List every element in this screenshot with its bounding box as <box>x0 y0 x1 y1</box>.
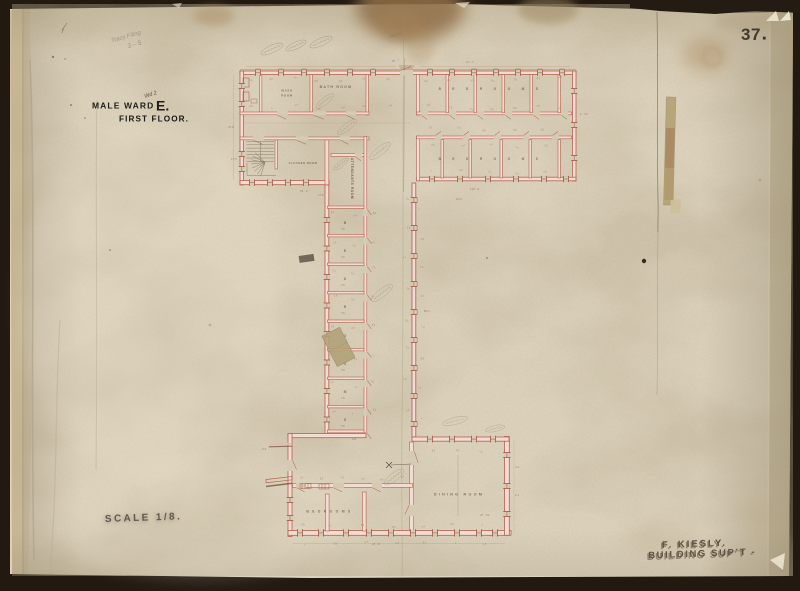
svg-text:9.8: 9.8 <box>352 437 357 441</box>
svg-text:ATTENDANTS ROOM: ATTENDANTS ROOM <box>350 158 354 199</box>
svg-text:M: M <box>344 390 347 394</box>
svg-text:80.1: 80.1 <box>424 309 430 313</box>
svg-text:7.6: 7.6 <box>341 283 345 287</box>
svg-text:E.: E. <box>156 98 169 114</box>
svg-text:2 . 10: 2 . 10 <box>580 112 588 116</box>
svg-text:ROOM: ROOM <box>281 94 293 98</box>
svg-text:2.1: 2.1 <box>515 493 520 497</box>
svg-text:3.1: 3.1 <box>515 465 520 469</box>
svg-text:17.4: 17.4 <box>231 157 237 161</box>
svg-text:BEDROOMS: BEDROOMS <box>439 157 550 161</box>
svg-text:FIRST FLOOR.: FIRST FLOOR. <box>119 115 189 124</box>
svg-text:146 . 9: 146 . 9 <box>470 187 480 191</box>
svg-text:17.8: 17.8 <box>318 193 324 197</box>
svg-text:DINING ROOM: DINING ROOM <box>434 493 484 497</box>
svg-text:27 . 10: 27 . 10 <box>480 513 490 517</box>
svg-text:MALE WARD: MALE WARD <box>92 101 154 111</box>
svg-text:37 . 8: 37 . 8 <box>372 542 380 546</box>
svg-text:27.8: 27.8 <box>228 125 234 129</box>
svg-text:BATH ROOM: BATH ROOM <box>320 85 353 89</box>
svg-text:7.6: 7.6 <box>341 368 345 372</box>
svg-text:7.6: 7.6 <box>341 396 345 400</box>
svg-text:7.6: 7.6 <box>341 255 345 259</box>
svg-text:54 . 2: 54 . 2 <box>300 189 308 193</box>
svg-text:WASH: WASH <box>281 89 292 93</box>
svg-text:6.2: 6.2 <box>262 447 267 451</box>
svg-text:7.6: 7.6 <box>341 227 345 231</box>
svg-text:10.6: 10.6 <box>456 197 462 201</box>
svg-text:CLOTHES ROOM: CLOTHES ROOM <box>289 161 318 165</box>
svg-text:BEDROOMS: BEDROOMS <box>439 87 550 91</box>
svg-text:7.6: 7.6 <box>341 311 345 315</box>
svg-text:7.6: 7.6 <box>341 424 345 428</box>
svg-text:BEDROOMS: BEDROOMS <box>306 510 353 514</box>
svg-text:10 . 7: 10 . 7 <box>466 60 474 64</box>
